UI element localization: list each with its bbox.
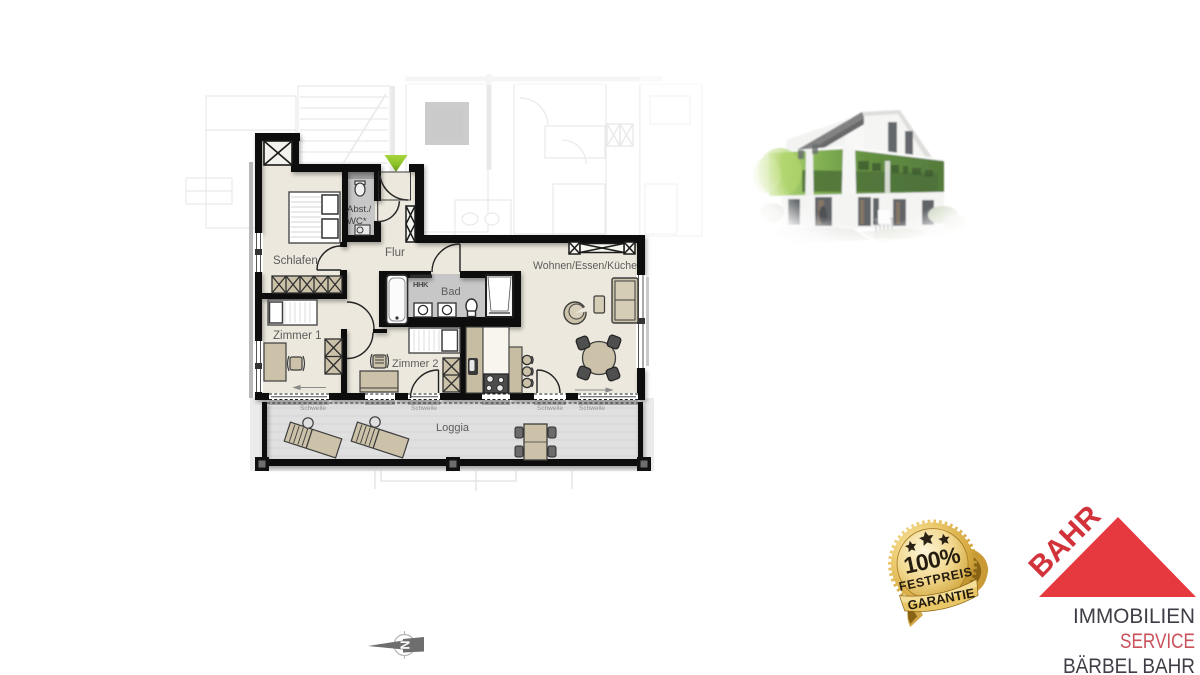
svg-text:Schlafen: Schlafen — [273, 255, 318, 267]
svg-text:IMMOBILIEN: IMMOBILIEN — [1073, 605, 1195, 628]
svg-text:Schwelle: Schwelle — [537, 405, 563, 412]
svg-text:Schwelle: Schwelle — [579, 405, 605, 412]
svg-text:Bad: Bad — [441, 286, 461, 298]
svg-text:WC*: WC* — [347, 216, 367, 227]
svg-text:N: N — [398, 640, 412, 649]
svg-text:SERVICE: SERVICE — [1120, 630, 1195, 653]
svg-text:Loggia: Loggia — [436, 422, 470, 434]
svg-text:HHK: HHK — [413, 280, 429, 289]
svg-text:Wohnen/Essen/Küche: Wohnen/Essen/Küche — [533, 260, 637, 272]
svg-text:Flur: Flur — [385, 247, 405, 259]
svg-text:Zimmer 1: Zimmer 1 — [273, 330, 322, 342]
svg-text:Schwelle: Schwelle — [411, 405, 437, 412]
svg-text:BÄRBEL BAHR: BÄRBEL BAHR — [1063, 655, 1195, 675]
svg-text:Zimmer 2: Zimmer 2 — [392, 358, 438, 370]
svg-text:Schwelle: Schwelle — [300, 405, 326, 412]
svg-text:Abst./: Abst./ — [347, 204, 372, 215]
